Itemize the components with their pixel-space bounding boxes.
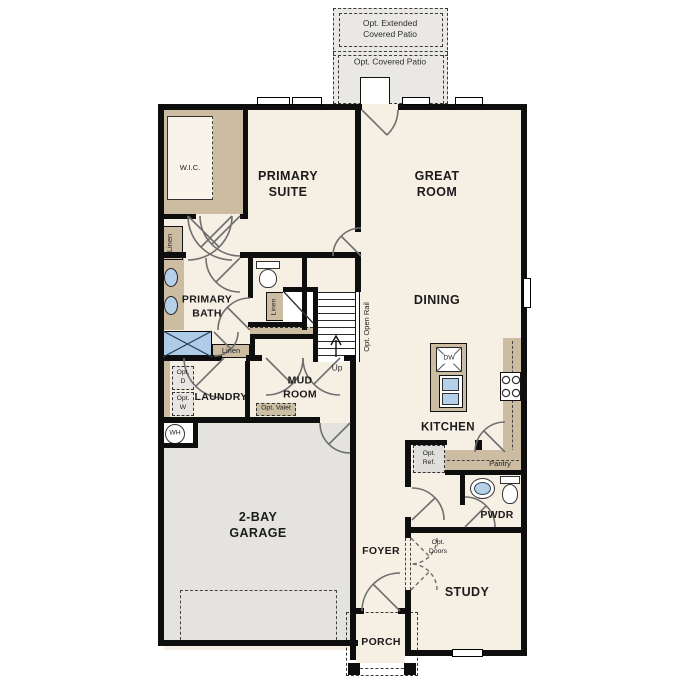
wall <box>283 287 318 292</box>
toilet-tank-pwdr <box>500 476 520 484</box>
label-pantry: Pantry <box>489 459 511 469</box>
wall <box>248 322 307 327</box>
label-primary-suite: PRIMARY SUITE <box>258 168 318 201</box>
patio-edge-left <box>338 55 340 104</box>
label-kitchen: KITCHEN <box>421 421 475 436</box>
label-great-room: GREAT ROOM <box>415 168 460 201</box>
label-foyer: FOYER <box>362 545 400 559</box>
wall <box>350 608 356 660</box>
label-opt-washer: Opt. W <box>177 395 190 413</box>
range <box>500 372 521 401</box>
vanity-sink-1 <box>164 268 178 287</box>
wall <box>158 214 196 219</box>
wall <box>405 527 411 538</box>
wall <box>405 440 447 445</box>
patio-edge-right <box>443 55 445 104</box>
label-opt-open-rail: Opt. Open Rail <box>362 302 372 352</box>
label-pwdr: PWDR <box>480 509 513 523</box>
wall <box>355 252 361 292</box>
label-mud-room: MUD ROOM <box>283 374 317 401</box>
toilet-bowl-pwdr <box>502 484 518 504</box>
label-study: STUDY <box>445 584 489 600</box>
wic-interior <box>167 116 213 200</box>
label-wic: W.I.C. <box>180 163 200 173</box>
label-water-heater: WH <box>169 430 180 439</box>
wall <box>405 517 411 527</box>
window <box>523 278 531 308</box>
wall <box>350 361 356 608</box>
label-opt-doors: Opt. Doors <box>429 539 447 557</box>
label-opt-covered-patio: Opt. Covered Patio <box>354 56 426 67</box>
garage-door-outline <box>180 590 337 640</box>
opt-doors-opening <box>405 538 411 590</box>
door-gap <box>362 104 398 110</box>
wall <box>240 252 361 258</box>
label-linen-stairs: Linen <box>271 299 280 316</box>
window <box>455 97 483 105</box>
label-garage: 2-BAY GARAGE <box>229 509 286 542</box>
wall <box>248 258 253 298</box>
vanity-sink-2 <box>164 296 178 315</box>
label-opt-extended-patio: Opt. Extended Covered Patio <box>363 18 417 40</box>
toilet-bowl-bath <box>259 269 277 288</box>
stair-rail <box>355 292 360 362</box>
patio-door-landing <box>360 77 390 104</box>
wall <box>521 104 527 656</box>
wall <box>243 104 248 219</box>
wall <box>475 440 482 450</box>
label-dishwasher: DW <box>442 355 455 364</box>
window <box>402 97 430 105</box>
label-linen-mud: Linen <box>222 346 240 356</box>
shower <box>163 331 212 357</box>
floor-plan: Opt. Extended Covered Patio Opt. Covered… <box>0 0 687 687</box>
label-primary-bath: PRIMARY BATH <box>182 293 232 320</box>
island-sink-basin-2 <box>442 393 459 405</box>
wall <box>302 258 307 330</box>
staircase <box>318 292 355 362</box>
wall <box>405 527 527 533</box>
wall <box>445 470 521 475</box>
porch-post-left <box>348 663 360 675</box>
window <box>292 97 322 105</box>
wall <box>250 334 318 339</box>
wall <box>158 640 358 646</box>
label-opt-dryer: Opt. D <box>177 369 190 387</box>
wall <box>313 292 318 362</box>
wall <box>158 417 320 423</box>
wall <box>355 104 361 232</box>
wall <box>405 590 411 656</box>
window <box>257 97 290 105</box>
island-sink-basin-1 <box>442 378 459 391</box>
window <box>452 649 483 657</box>
wall <box>158 252 186 258</box>
label-opt-ref: Opt. Ref. <box>423 450 436 468</box>
label-dining: DINING <box>414 292 460 308</box>
wall <box>158 104 164 646</box>
wall <box>158 443 198 448</box>
label-opt-valet: Opt. Valet <box>261 405 291 414</box>
counter-right-dash <box>512 341 514 467</box>
patio-divider <box>333 51 448 56</box>
wall <box>158 355 222 361</box>
wall <box>460 475 465 505</box>
under-stair-storage <box>283 292 313 324</box>
wall <box>350 608 364 614</box>
label-porch: PORCH <box>361 636 400 650</box>
pwdr-sink-basin <box>474 482 491 495</box>
label-up: Up <box>332 362 343 373</box>
wall <box>405 440 411 487</box>
porch-post-right <box>404 663 416 675</box>
label-laundry: LAUNDRY <box>194 391 247 405</box>
wall <box>240 214 248 219</box>
label-linen-hall: Linen <box>165 234 175 252</box>
toilet-tank-bath <box>256 261 280 269</box>
